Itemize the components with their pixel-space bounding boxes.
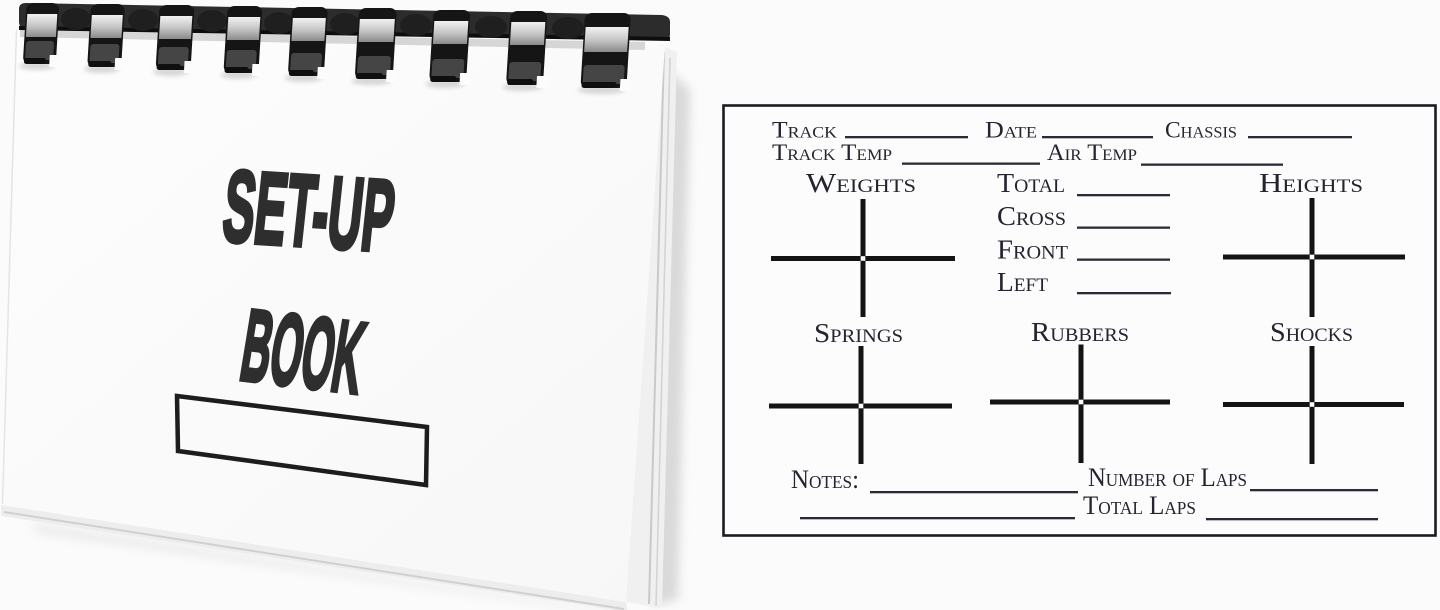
svg-text:Number of Laps: Number of Laps (1088, 463, 1247, 492)
svg-text:Weights: Weights (806, 168, 916, 198)
svg-text:SET-UP: SET-UP (218, 150, 400, 274)
svg-text:Track Temp: Track Temp (772, 140, 892, 165)
svg-text:Air Temp: Air Temp (1047, 140, 1137, 165)
svg-text:Date: Date (985, 118, 1037, 143)
svg-text:Front: Front (997, 235, 1068, 265)
svg-text:Heights: Heights (1259, 168, 1363, 198)
svg-text:Total Laps: Total Laps (1083, 491, 1196, 520)
svg-text:Notes:: Notes: (791, 465, 859, 494)
svg-text:Left: Left (997, 267, 1048, 297)
svg-text:Track: Track (772, 118, 837, 143)
svg-text:Springs: Springs (814, 318, 903, 348)
svg-text:Shocks: Shocks (1270, 317, 1353, 347)
svg-text:Chassis: Chassis (1165, 118, 1237, 143)
svg-text:BOOK: BOOK (234, 289, 372, 416)
svg-text:Cross: Cross (997, 201, 1066, 231)
svg-text:Rubbers: Rubbers (1031, 317, 1129, 347)
svg-text:Total: Total (997, 168, 1065, 198)
